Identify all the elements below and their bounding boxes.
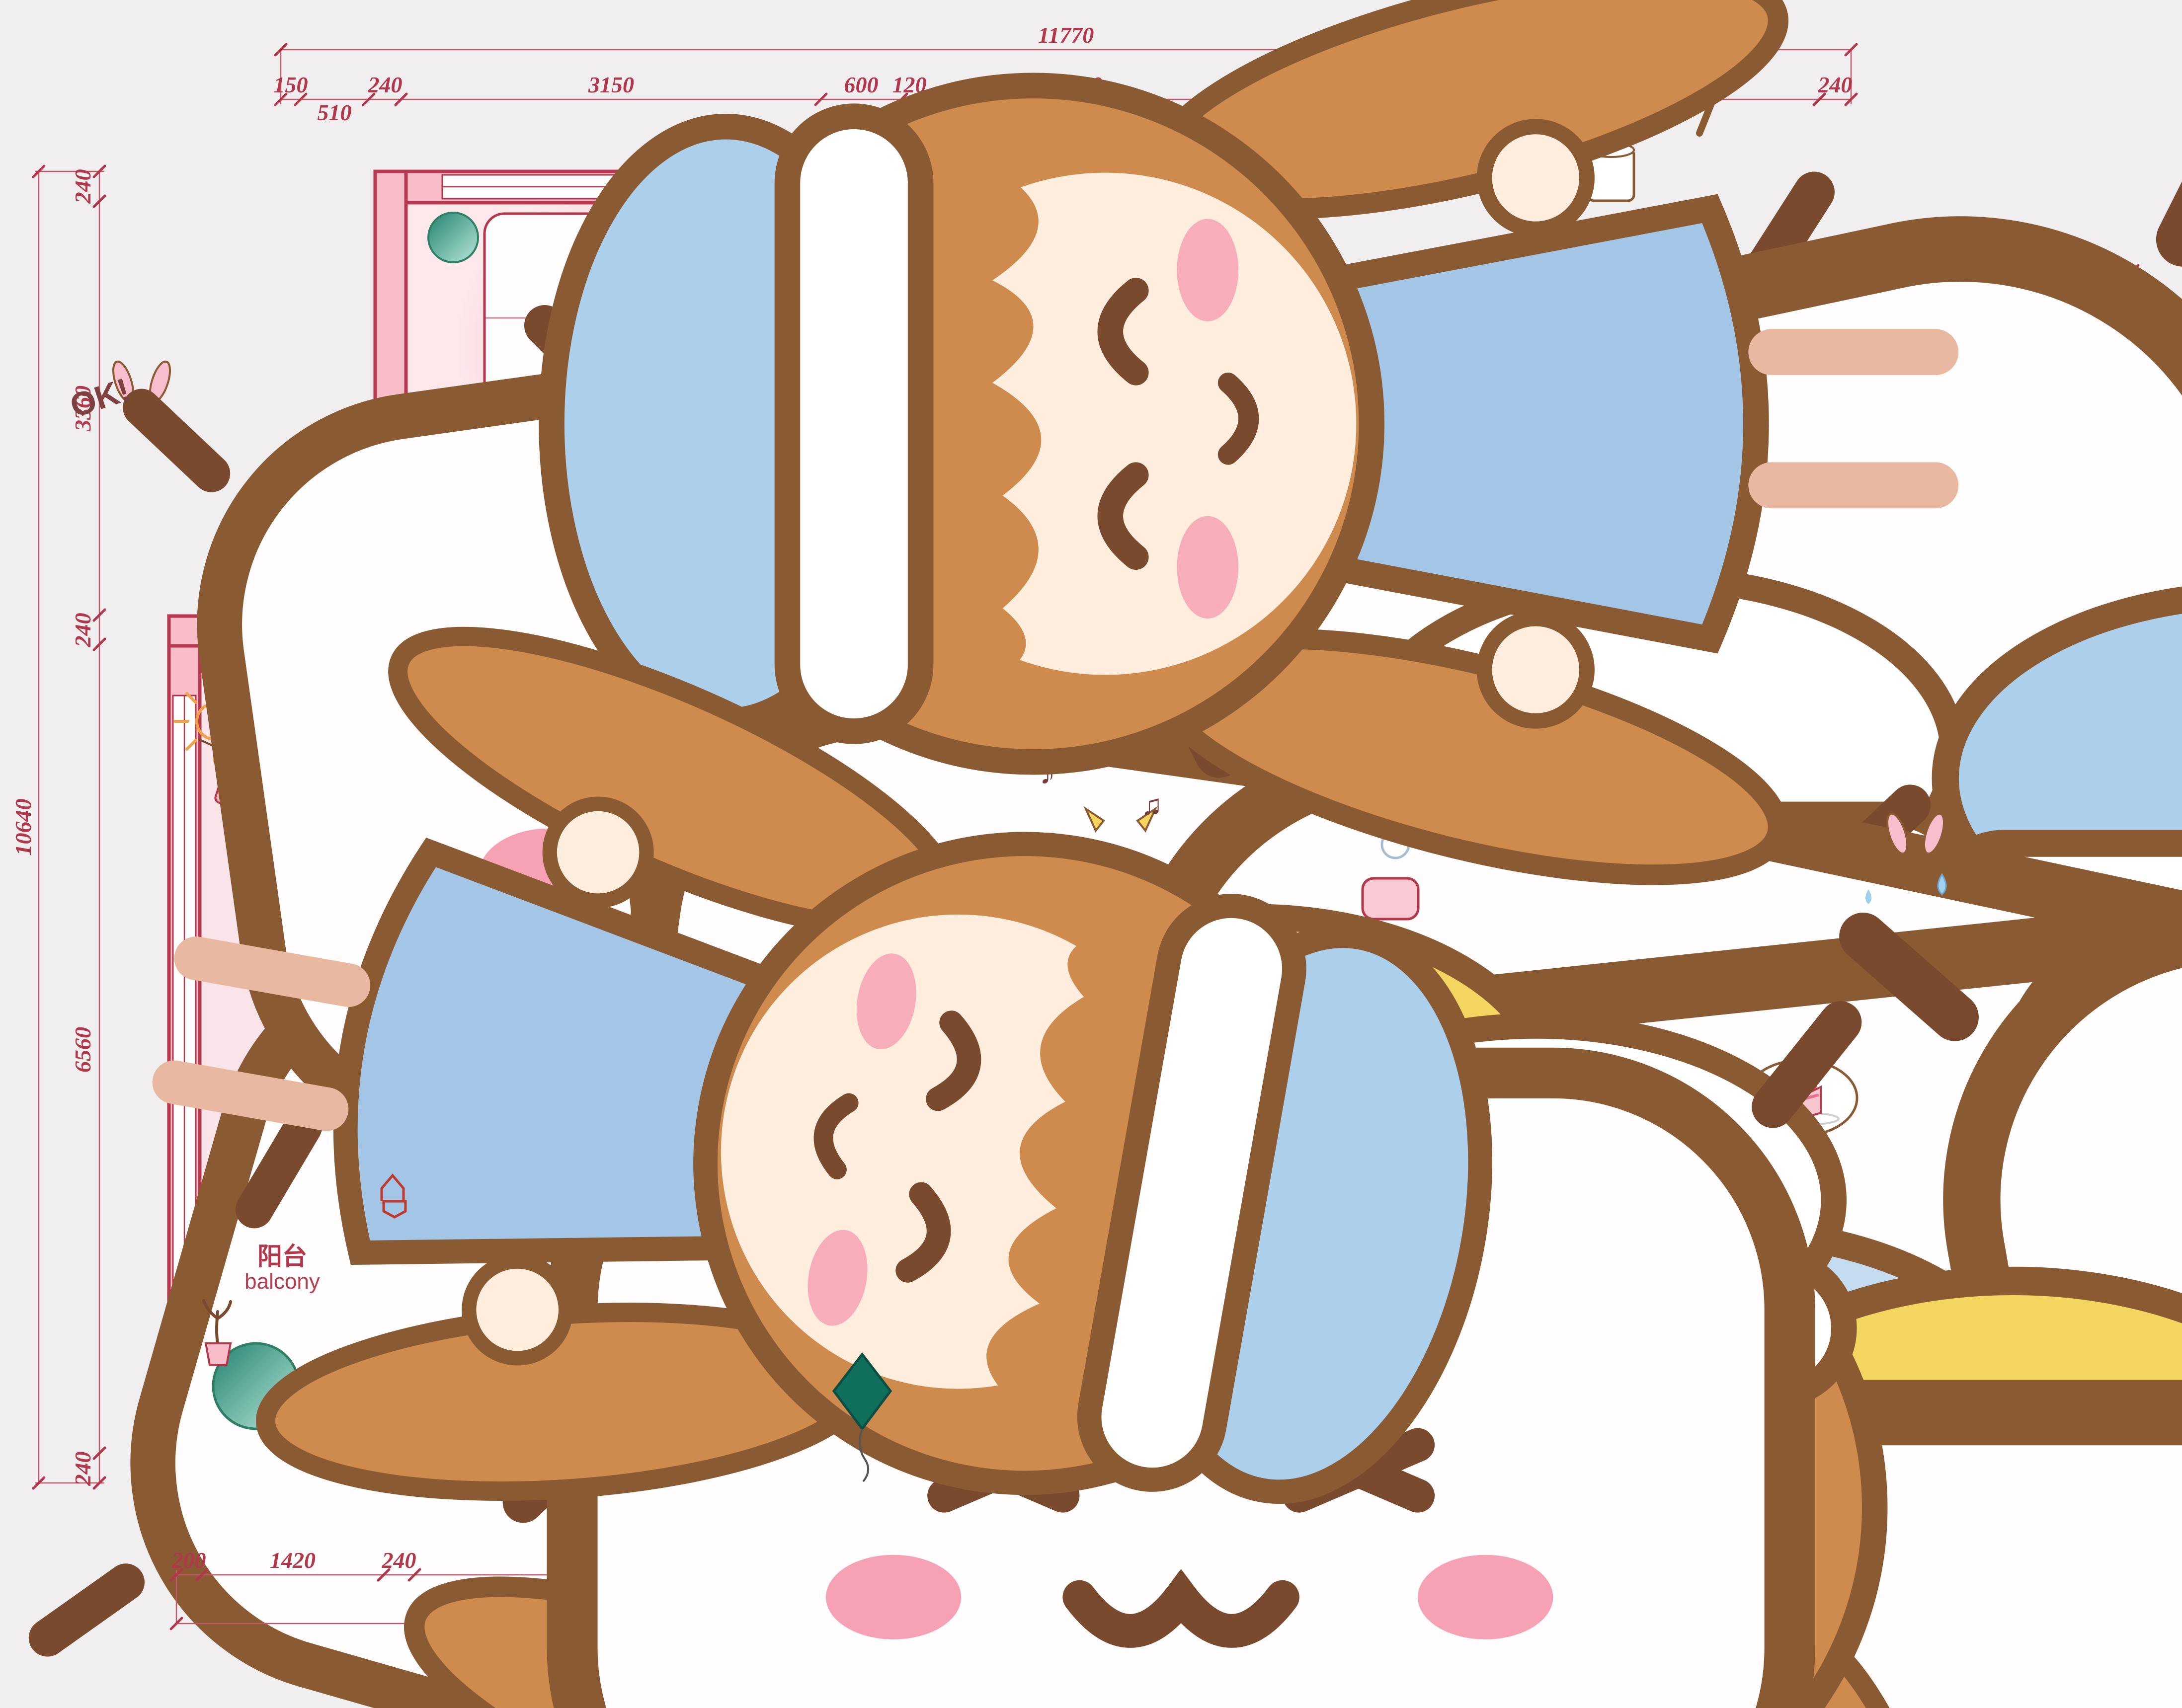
dim-top-seg: 240 <box>368 72 403 97</box>
room-label-balcony-zh: 阳台 <box>257 1242 307 1270</box>
dim-bottom-seg: 200 <box>171 1548 206 1573</box>
dim-top-seg: 3150 <box>588 72 634 97</box>
dim-bottom-seg: 240 <box>382 1548 416 1573</box>
room-label-balcony-en: balcony <box>244 1269 320 1294</box>
pink-pillow <box>1363 878 1418 919</box>
dim-left-seg: 240 <box>70 613 95 648</box>
dim-left-total: 10640 <box>10 799 36 856</box>
ok-doodle: OK! <box>66 371 134 424</box>
dim-top-seg: 150 <box>274 72 308 97</box>
floor-plan-drawing: TZ素材网 TZSUCAI.COM TZ素材网 TZSUCAI.COM 主卧 M… <box>0 0 2182 1708</box>
nightstand-lamp <box>428 213 478 262</box>
dim-bottom-seg: 1420 <box>270 1548 316 1573</box>
dim-top-seg: 600 <box>844 72 879 97</box>
dim-top-seg: 510 <box>318 100 352 125</box>
dim-left-seg: 6560 <box>70 1027 95 1073</box>
floor-plan-canvas: TZ素材网 TZSUCAI.COM TZ素材网 TZSUCAI.COM 主卧 M… <box>0 0 2182 1708</box>
dim-left-seg: 240 <box>70 1452 95 1486</box>
dim-left-seg: 240 <box>70 169 95 204</box>
music-note: ♫ <box>1141 789 1163 821</box>
dim-top-seg: 240 <box>1818 72 1853 97</box>
sprout-pot <box>206 1343 231 1365</box>
dim-top-total: 11770 <box>1038 22 1094 48</box>
